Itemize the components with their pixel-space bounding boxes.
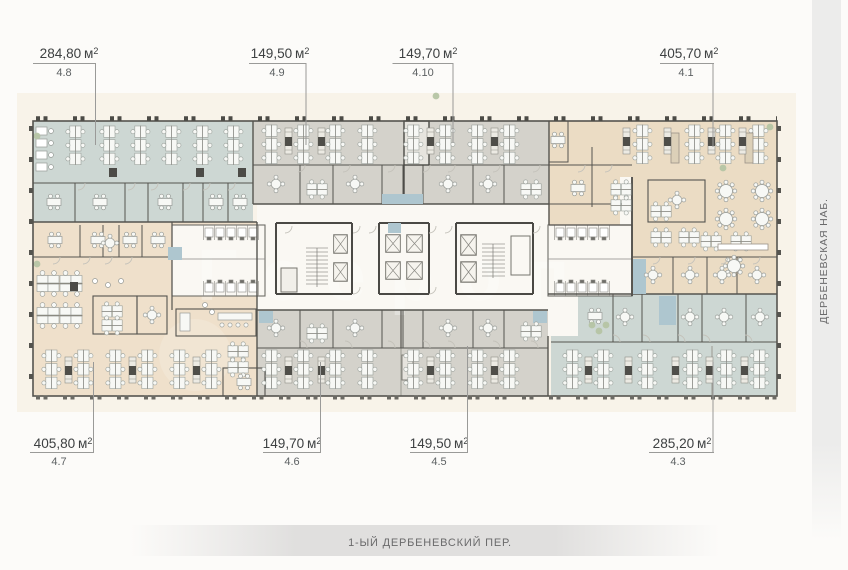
svg-text:4.6: 4.6: [284, 456, 299, 468]
svg-text:149,50 м2: 149,50 м2: [410, 436, 469, 451]
svg-text:4.10: 4.10: [412, 67, 433, 79]
svg-text:4.5: 4.5: [431, 456, 446, 468]
svg-text:149,70 м2: 149,70 м2: [399, 46, 458, 61]
svg-text:285,20 м2: 285,20 м2: [653, 436, 712, 451]
svg-text:ДЕРБЕНЕВСКАЯ НАБ.: ДЕРБЕНЕВСКАЯ НАБ.: [818, 198, 830, 323]
svg-text:405,80 м2: 405,80 м2: [34, 436, 93, 451]
svg-text:284,80 м2: 284,80 м2: [40, 46, 99, 61]
svg-text:1-ЫЙ ДЕРБЕНЕВСКИЙ ПЕР.: 1-ЫЙ ДЕРБЕНЕВСКИЙ ПЕР.: [348, 536, 512, 549]
svg-text:4.7: 4.7: [51, 456, 66, 468]
svg-text:4.8: 4.8: [56, 67, 71, 79]
svg-text:405,70 м2: 405,70 м2: [660, 46, 719, 61]
svg-text:4.1: 4.1: [678, 67, 693, 79]
svg-text:149,70 м2: 149,70 м2: [263, 436, 322, 451]
svg-text:4.9: 4.9: [269, 67, 284, 79]
svg-text:149,50 м2: 149,50 м2: [251, 46, 310, 61]
svg-text:4.3: 4.3: [670, 456, 685, 468]
